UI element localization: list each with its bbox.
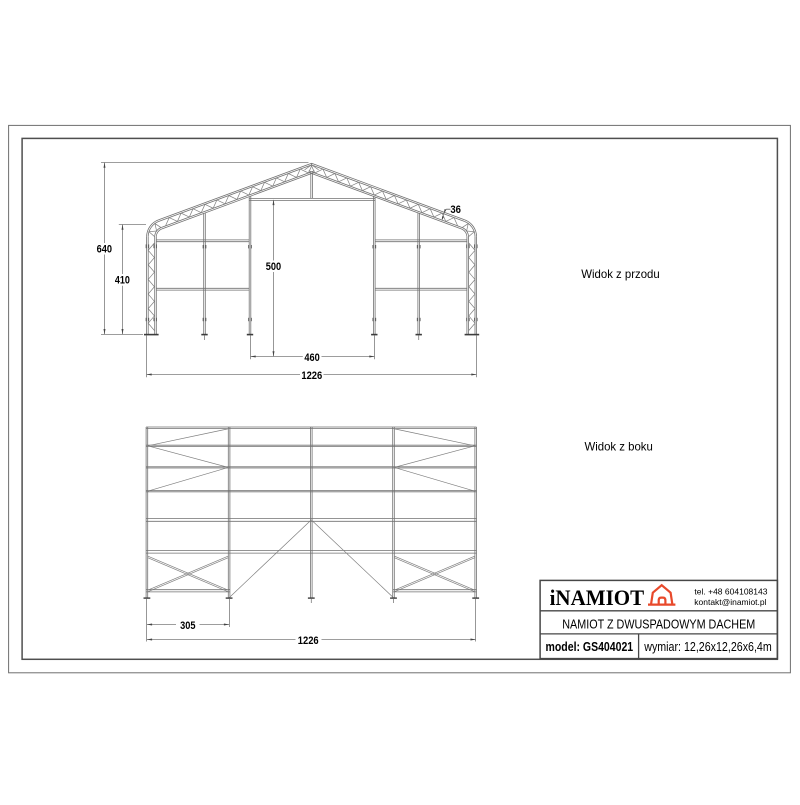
svg-text:460: 460 [304, 352, 319, 364]
svg-text:36: 36 [450, 204, 461, 216]
svg-text:500: 500 [266, 261, 281, 273]
svg-text:NAMIOT Z DWUSPADOWYM DACHEM: NAMIOT Z DWUSPADOWYM DACHEM [562, 616, 755, 631]
svg-text:410: 410 [115, 275, 130, 287]
svg-text:model: GS404021: model: GS404021 [546, 639, 634, 654]
svg-text:iNAMIOT: iNAMIOT [550, 585, 645, 610]
svg-text:kontakt@inamiot.pl: kontakt@inamiot.pl [694, 597, 766, 607]
svg-text:tel. +48 604108143: tel. +48 604108143 [694, 587, 767, 597]
svg-text:640: 640 [97, 244, 112, 256]
svg-text:1226: 1226 [298, 635, 319, 647]
svg-text:wymiar: 12,26x12,26x6,4m: wymiar: 12,26x12,26x6,4m [643, 639, 771, 654]
svg-text:Widok z przodu: Widok z przodu [581, 267, 659, 281]
svg-text:1226: 1226 [301, 370, 322, 382]
svg-text:305: 305 [180, 620, 195, 632]
svg-text:Widok z boku: Widok z boku [585, 440, 653, 454]
